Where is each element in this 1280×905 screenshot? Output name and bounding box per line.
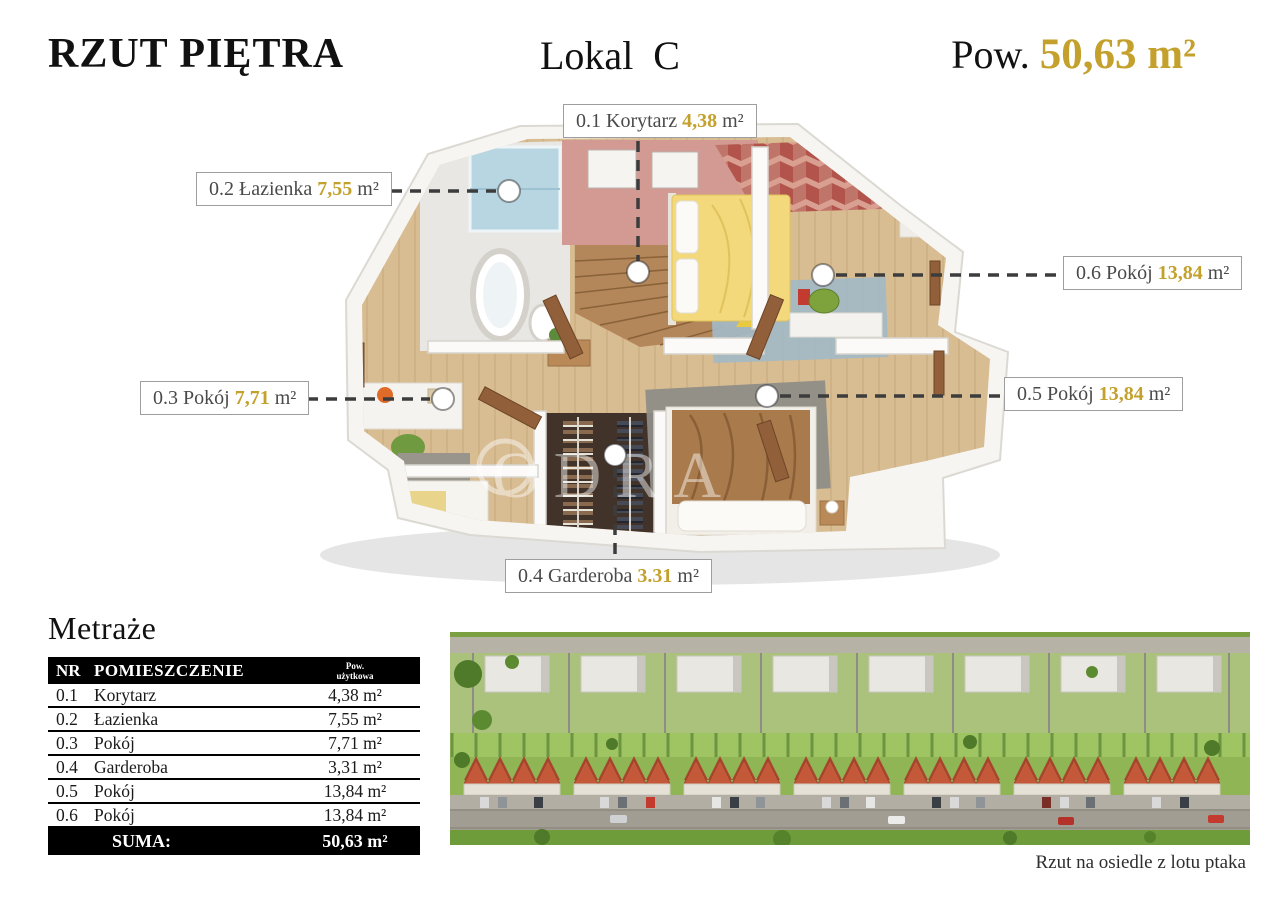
- table-row: 0.1Korytarz4,38 m²: [48, 684, 420, 708]
- lamp: [826, 501, 838, 513]
- area-value: 50,63 m²: [1040, 31, 1196, 78]
- wall-picture: [652, 152, 698, 188]
- driveway: [450, 795, 1250, 809]
- grass: [450, 830, 1250, 845]
- pillow: [676, 259, 698, 313]
- col-room: POMIESZCZENIE: [94, 661, 290, 681]
- col-nr: NR: [48, 661, 94, 681]
- room-label-garderoba: 0.4 Garderoba 3.31 m²: [505, 559, 712, 593]
- page-title: RZUT PIĘTRA: [48, 30, 344, 78]
- marker-garderoba: [604, 444, 626, 466]
- aerial-caption: Rzut na osiedle z lotu ptaka: [1035, 852, 1246, 874]
- wall-picture: [588, 150, 636, 188]
- floorplan-sheet: { "header": { "title": "RZUT PIĘTRA", "u…: [0, 0, 1280, 905]
- room-label-korytarz: 0.1 Korytarz 4,38 m²: [563, 104, 757, 138]
- marker-pokoj-06: [812, 264, 834, 286]
- table-row: 0.3Pokój7,71 m²: [48, 732, 420, 756]
- table-sum-row: SUMA:50,63 m²: [48, 828, 420, 855]
- room-label-lazienka: 0.2 Łazienka 7,55 m²: [196, 172, 392, 206]
- floorplan-render: ODRA: [0, 95, 1280, 605]
- marker-lazienka: [498, 180, 520, 202]
- marker-pokoj-05: [756, 385, 778, 407]
- aerial-view: [450, 632, 1250, 845]
- table-header-row: NR POMIESZCZENIE Pow.użytkowa: [48, 657, 420, 684]
- pillow: [676, 201, 698, 253]
- marker-korytarz: [627, 261, 649, 283]
- areas-table: Metraże NR POMIESZCZENIE Pow.użytkowa 0.…: [48, 610, 420, 855]
- table-row: 0.2Łazienka7,55 m²: [48, 708, 420, 732]
- total-area: Pow. 50,63 m²: [951, 30, 1196, 79]
- road: [450, 809, 1250, 830]
- toy: [798, 289, 810, 305]
- table-row: 0.6Pokój13,84 m²: [48, 804, 420, 828]
- room-label-pokoj-03: 0.3 Pokój 7,71 m²: [140, 381, 309, 415]
- sum-value: 50,63 m²: [290, 831, 420, 852]
- unit-name: Lokal C: [540, 32, 680, 79]
- room-label-pokoj-05: 0.5 Pokój 13,84 m²: [1004, 377, 1183, 411]
- marker-pokoj-03: [432, 388, 454, 410]
- table-row: 0.4Garderoba3,31 m²: [48, 756, 420, 780]
- sum-label: SUMA:: [48, 831, 290, 852]
- room-label-pokoj-06: 0.6 Pokój 13,84 m²: [1063, 256, 1242, 290]
- desk: [790, 313, 882, 337]
- area-label: Pow.: [951, 32, 1040, 77]
- plant: [939, 180, 957, 198]
- table-heading: Metraże: [48, 610, 420, 647]
- col-area: Pow.użytkowa: [290, 661, 420, 681]
- table-row: 0.5Pokój13,84 m²: [48, 780, 420, 804]
- desk-chair: [809, 289, 839, 313]
- gardens: [450, 733, 1250, 757]
